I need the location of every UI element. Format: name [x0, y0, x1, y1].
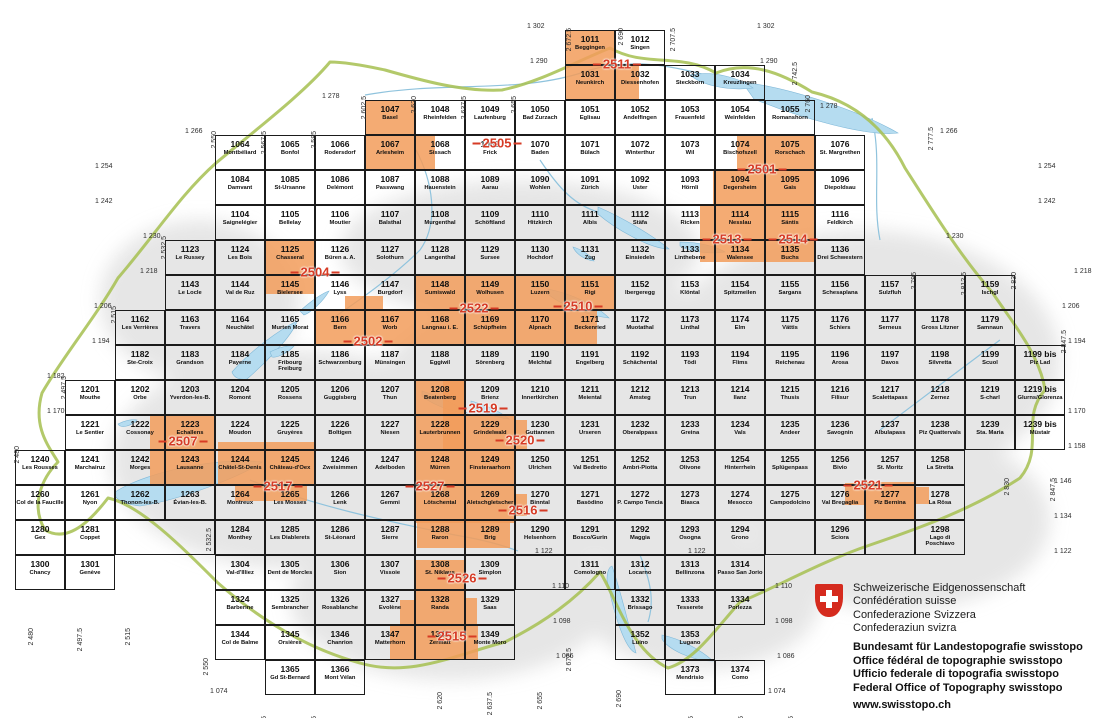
- sheet-name: Wohlen: [516, 185, 564, 191]
- map-sheet-cell: 1199Scuol: [965, 345, 1015, 380]
- grid-coordinate-label: 1 110: [552, 583, 569, 590]
- office-line-it: Ufficio federale di topografia swisstopo: [853, 668, 1083, 682]
- map-sheet-cell: 1076St. Margrethen: [815, 135, 865, 170]
- sheet-number: 1325: [266, 595, 314, 604]
- grid-coordinate-label: 1 206: [94, 303, 112, 310]
- sheet-name: Burgdorf: [366, 290, 414, 296]
- sheet-number: 1215: [766, 385, 814, 394]
- sheet-name: Rheinfelden: [416, 115, 464, 121]
- map-sheet-cell: 1110Hitzkirch: [515, 205, 565, 240]
- sheet-name: Büren a. A.: [316, 255, 364, 261]
- sheet-number: 1245: [266, 455, 314, 464]
- sheet-number: 1174: [716, 315, 764, 324]
- sheet-number: 1131: [566, 245, 614, 254]
- map-sheet-cell: 1050Bad Zurzach: [515, 100, 565, 135]
- sheet-number: 1156: [816, 280, 864, 289]
- map-sheet-cell: 1345Orsières: [265, 625, 315, 660]
- sheet-number: 1154: [716, 280, 764, 289]
- sheet-name: Schächental: [616, 360, 664, 366]
- map-sheet-cell: 1172Muotathal: [615, 310, 665, 345]
- map-sheet-cell: 1243Lausanne: [165, 450, 215, 485]
- grid-coordinate-label: 2 655: [537, 692, 544, 710]
- map-sheet-cell: 1201Mouthe: [65, 380, 115, 415]
- office-names: Bundesamt für Landestopografie swisstopo…: [853, 641, 1083, 695]
- sheet-number: 1182: [116, 350, 164, 359]
- map-sheet-cell: 1165Murten Morat: [265, 310, 315, 345]
- map-sheet-cell: 1241Marchairuz: [65, 450, 115, 485]
- sheet-number: 1086: [316, 175, 364, 184]
- sheet-number: 1240: [16, 455, 64, 464]
- sheet-name: Piz Bernina: [866, 500, 914, 506]
- sheet-number: 1124: [216, 245, 264, 254]
- sheet-number: 1254: [716, 455, 764, 464]
- sheet-number: 1257: [866, 455, 914, 464]
- sheet-number: 1147: [366, 280, 414, 289]
- sheet-name: Chanrion: [316, 640, 364, 646]
- grid-coordinate-label: 2 830: [1011, 272, 1018, 290]
- swisstopo-map-index: Schweizerische Eidgenossenschaft Confédé…: [0, 0, 1100, 718]
- grid-coordinate-label: 1 254: [1038, 163, 1056, 170]
- map-sheet-cell: 1344Col de Balme: [215, 625, 265, 660]
- map-sheet-cell: 1145Bielersee: [265, 275, 315, 310]
- sheet-number: 1179: [966, 315, 1014, 324]
- map-sheet-cell: 1147Burgdorf: [365, 275, 415, 310]
- sheet-name: Col de Balme: [216, 640, 264, 646]
- sheet-name: Elm: [716, 325, 764, 331]
- grid-coordinate-label: 1 122: [1054, 548, 1072, 555]
- sheet-number: 1312: [616, 560, 664, 569]
- sheet-name: Sissach: [416, 150, 464, 156]
- sheet-name: Wolhusen: [466, 290, 514, 296]
- grid-coordinate-label: 2 690: [618, 28, 625, 46]
- sheet-number: 1047: [366, 105, 414, 114]
- map-sheet-cell: 1219 bisGlurns/Glorenza: [1015, 380, 1065, 415]
- sheet-name: Frauenfeld: [666, 115, 714, 121]
- map-sheet-cell: 1107Balsthal: [365, 205, 415, 240]
- sheet-name: Hauenstein: [416, 185, 464, 191]
- sheet-number: 1178: [916, 315, 964, 324]
- sheet-number: 1218: [916, 385, 964, 394]
- sheet-number: 1203: [166, 385, 214, 394]
- map-sheet-cell: 1109Schöftland: [465, 205, 515, 240]
- sheet-name: Barberine: [216, 605, 264, 611]
- map-sheet-cell: 1312Locarno: [615, 555, 665, 590]
- map-sheet-cell: 1196Arosa: [815, 345, 865, 380]
- sheet-number: 1280: [16, 525, 64, 534]
- sheet-number: 1228: [416, 420, 464, 429]
- sheet-name: Monthey: [216, 535, 264, 541]
- sheet-name: Lyss: [316, 290, 364, 296]
- map-sheet-cell: 1298Lago di Poschiavo: [915, 520, 965, 555]
- map-sheet-cell: 1246Zweisimmen: [315, 450, 365, 485]
- sheet-name: Lugano: [666, 640, 714, 646]
- sheet-number: 1053: [666, 105, 714, 114]
- sheet-name: Drei Schwestern: [816, 255, 864, 261]
- sheet-number: 1066: [316, 140, 364, 149]
- sheet-number: 1149: [466, 280, 514, 289]
- map-sheet-cell: 1213Trun: [665, 380, 715, 415]
- grid-coordinate-label: 1 122: [688, 548, 706, 555]
- sheet-name: Grono: [716, 535, 764, 541]
- grid-coordinate-label: 1 098: [775, 618, 793, 625]
- sheet-number: 1162: [116, 315, 164, 324]
- grid-coordinate-label: 1 266: [940, 128, 958, 135]
- grid-coordinate-label: 1 290: [760, 58, 778, 65]
- sheet-name: Ambrì-Piotta: [616, 465, 664, 471]
- sheet-number: 1314: [716, 560, 764, 569]
- sheet-name: Murten Morat: [266, 325, 314, 331]
- map-sheet-cell: 1263Évian-les-B.: [165, 485, 215, 520]
- sheet-name: Schwarzenburg: [316, 360, 364, 366]
- sheet-name: Schiers: [816, 325, 864, 331]
- map-sheet-cell: 1111Albis: [565, 205, 615, 240]
- sheet-number: 1255: [766, 455, 814, 464]
- sheet-number: 1269: [466, 490, 514, 499]
- sheet-number: 1034: [716, 70, 764, 79]
- sheet-name: Nesslau: [716, 220, 764, 226]
- sheet-name: Châtel-St-Denis: [216, 465, 264, 471]
- sheet-name: Moutier: [316, 220, 364, 226]
- map-sheet-cell: 1197Davos: [865, 345, 915, 380]
- map-sheet-cell: 1238Piz Quattervals: [915, 415, 965, 450]
- sheet-number: 1287: [366, 525, 414, 534]
- sheet-name: Serneus: [866, 325, 914, 331]
- sheet-name: Boltigen: [316, 430, 364, 436]
- sheet-number: 1304: [216, 560, 264, 569]
- sheet-name: La Stretta: [916, 465, 964, 471]
- sheet-name: Urseren: [566, 430, 614, 436]
- sheet-number: 1278: [916, 490, 964, 499]
- confed-line-fr: Confédération suisse: [853, 595, 1025, 608]
- map-sheet-cell: 1328Randa: [415, 590, 465, 625]
- sheet-number: 1311: [566, 560, 614, 569]
- sheet-number: 1308: [416, 560, 464, 569]
- sheet-name: Rossens: [266, 395, 314, 401]
- sheet-name: Zernez: [916, 395, 964, 401]
- map-sheet-cell: 1164Neuchâtel: [215, 310, 265, 345]
- sheet-name: Bern: [316, 325, 364, 331]
- sheet-name: Sierre: [366, 535, 414, 541]
- sheet-number: 1309: [466, 560, 514, 569]
- swisstopo-url: www.swisstopo.ch: [853, 699, 951, 711]
- sheet-number: 1227: [366, 420, 414, 429]
- sheet-number: 1093: [666, 175, 714, 184]
- sheet-number: 1290: [516, 525, 564, 534]
- sheet-number: 1243: [166, 455, 214, 464]
- sheet-number: 1244: [216, 455, 264, 464]
- composite-sheet-number: 2510: [552, 299, 605, 314]
- map-sheet-cell: 1232Oberalppass: [615, 415, 665, 450]
- sheet-number: 1067: [366, 140, 414, 149]
- sheet-number: 1085: [266, 175, 314, 184]
- map-sheet-cell: 1132Einsiedeln: [615, 240, 665, 275]
- map-sheet-cell: 1112Stäfa: [615, 205, 665, 240]
- sheet-name: Linthebene: [666, 255, 714, 261]
- map-sheet-cell: 1155Sargans: [765, 275, 815, 310]
- sheet-number: 1105: [266, 210, 314, 219]
- grid-coordinate-label: 1 230: [143, 233, 161, 240]
- sheet-name: Sembrancher: [266, 605, 314, 611]
- map-sheet-cell: 1261Nyon: [65, 485, 115, 520]
- map-sheet-cell: 1190Melchtal: [515, 345, 565, 380]
- sheet-number: 1130: [516, 245, 564, 254]
- sheet-number: 1347: [366, 630, 414, 639]
- map-sheet-cell: 1105Bellelay: [265, 205, 315, 240]
- grid-coordinate-label: 2 760: [805, 95, 812, 113]
- map-sheet-cell: 1171Beckenried: [565, 310, 615, 345]
- map-sheet-cell: 1347Matterhorn: [365, 625, 415, 660]
- map-sheet-cell: 1291Bosco/Gurin: [565, 520, 615, 555]
- sheet-number: 1123: [166, 245, 214, 254]
- empty-sheet-cell: [115, 520, 215, 555]
- sheet-number: 1104: [216, 210, 264, 219]
- sheet-name: Müstair: [1016, 430, 1064, 436]
- map-sheet-cell: 1252Ambrì-Piotta: [615, 450, 665, 485]
- sheet-name: Nyon: [66, 500, 114, 506]
- grid-coordinate-label: 2 602.5: [361, 96, 368, 119]
- sheet-number: 1166: [316, 315, 364, 324]
- sheet-number: 1204: [216, 385, 264, 394]
- map-sheet-cell: 1266Lenk: [315, 485, 365, 520]
- sheet-name: Steckborn: [666, 80, 714, 86]
- sheet-name: Mont Vélan: [316, 675, 364, 681]
- composite-sheet-number: 2519: [457, 401, 510, 416]
- sheet-number: 1113: [666, 210, 714, 219]
- sheet-name: Damvant: [216, 185, 264, 191]
- grid-coordinate-label: 2 497.5: [77, 628, 84, 651]
- sheet-number: 1281: [66, 525, 114, 534]
- sheet-number: 1090: [516, 175, 564, 184]
- sheet-number: 1305: [266, 560, 314, 569]
- map-sheet-cell: 1170Alpnach: [515, 310, 565, 345]
- map-sheet-cell: 1089Aarau: [465, 170, 515, 205]
- map-sheet-cell: 1333Tesserete: [665, 590, 715, 625]
- map-sheet-cell: 1218Zernez: [915, 380, 965, 415]
- grid-coordinate-label: 1 158: [1068, 443, 1086, 450]
- sheet-number: 1272: [616, 490, 664, 499]
- map-sheet-cell: 1255Splügenpass: [765, 450, 815, 485]
- map-sheet-cell: 1093Hörnli: [665, 170, 715, 205]
- map-sheet-cell: 1188Eggiwil: [415, 345, 465, 380]
- sheet-number: 1054: [716, 105, 764, 114]
- grid-coordinate-label: 2 637.5: [461, 96, 468, 119]
- sheet-name: Val Bedretto: [566, 465, 614, 471]
- map-sheet-cell: 1296Sciora: [815, 520, 865, 555]
- map-sheet-cell: 1162Les Verrières: [115, 310, 165, 345]
- map-sheet-cell: 1193Tödi: [665, 345, 715, 380]
- sheet-name: Melchtal: [516, 360, 564, 366]
- sheet-number: 1068: [416, 140, 464, 149]
- sheet-name: Albis: [566, 220, 614, 226]
- sheet-name: Neunkirch: [566, 80, 614, 86]
- map-sheet-cell: 1096Diepoldsau: [815, 170, 865, 205]
- sheet-number: 1125: [266, 245, 314, 254]
- sheet-number: 1236: [816, 420, 864, 429]
- sheet-name: Luino: [616, 640, 664, 646]
- sheet-number: 1266: [316, 490, 364, 499]
- map-sheet-cell: 1280Gex: [15, 520, 65, 555]
- sheet-number: 1208: [416, 385, 464, 394]
- sheet-number: 1183: [166, 350, 214, 359]
- sheet-number: 1096: [816, 175, 864, 184]
- confed-line-it: Confederazione Svizzera: [853, 609, 1025, 622]
- sheet-number: 1301: [66, 560, 114, 569]
- grid-coordinate-label: 1 086: [777, 653, 795, 660]
- sheet-number: 1089: [466, 175, 514, 184]
- sheet-number: 1206: [316, 385, 364, 394]
- sheet-name: Walensee: [716, 255, 764, 261]
- map-sheet-cell: 1053Frauenfeld: [665, 100, 715, 135]
- grid-coordinate-label: 2 812.5: [961, 272, 968, 295]
- sheet-number: 1196: [816, 350, 864, 359]
- map-sheet-cell: 1304Val-d'Illiez: [215, 555, 265, 590]
- sheet-number: 1234: [716, 420, 764, 429]
- map-sheet-cell: 1153Klöntal: [665, 275, 715, 310]
- sheet-name: P. Campo Tencia: [616, 500, 664, 506]
- map-sheet-cell: 1185Fribourg Freiburg: [265, 345, 315, 380]
- sheet-name: Buchs: [766, 255, 814, 261]
- sheet-name: Brig: [466, 535, 514, 541]
- sheet-number: 1214: [716, 385, 764, 394]
- sheet-number: 1033: [666, 70, 714, 79]
- sheet-number: 1168: [416, 315, 464, 324]
- sheet-name: Hinterrhein: [716, 465, 764, 471]
- map-sheet-cell: 1123Le Russey: [165, 240, 215, 275]
- map-sheet-cell: 1065Bonfol: [265, 135, 315, 170]
- sheet-number: 1270: [516, 490, 564, 499]
- map-sheet-cell: 1275Campodolcino: [765, 485, 815, 520]
- sheet-number: 1201: [66, 385, 114, 394]
- sheet-name: Schesaplana: [816, 290, 864, 296]
- sheet-number: 1184: [216, 350, 264, 359]
- sheet-name: Orsières: [266, 640, 314, 646]
- sheet-number: 1242: [116, 455, 164, 464]
- map-sheet-cell: 1289Brig: [465, 520, 515, 555]
- sheet-number: 1198: [916, 350, 964, 359]
- sheet-number: 1291: [566, 525, 614, 534]
- sheet-name: Hörnli: [666, 185, 714, 191]
- sheet-number: 1109: [466, 210, 514, 219]
- map-sheet-cell: 1179Samnaun: [965, 310, 1015, 345]
- map-sheet-cell: 1084Damvant: [215, 170, 265, 205]
- map-sheet-cell: 1274Mesocco: [715, 485, 765, 520]
- grid-coordinate-label: 1 302: [527, 23, 545, 30]
- map-sheet-cell: 1106Moutier: [315, 205, 365, 240]
- map-sheet-cell: 1228Lauterbrunnen: [415, 415, 465, 450]
- map-sheet-cell: 1130Hochdorf: [515, 240, 565, 275]
- sheet-name: Trun: [666, 395, 714, 401]
- sheet-name: Alpnach: [516, 325, 564, 331]
- sheet-number: 1065: [266, 140, 314, 149]
- grid-coordinate-label: 1 122: [535, 548, 553, 555]
- sheet-name: Filisur: [816, 395, 864, 401]
- sheet-number: 1224: [216, 420, 264, 429]
- sheet-name: Val Bregaglia: [816, 500, 864, 506]
- sheet-name: Morges: [116, 465, 164, 471]
- map-sheet-cell: 1146Lyss: [315, 275, 365, 310]
- sheet-name: Basel: [366, 115, 414, 121]
- map-sheet-cell: 1327Evolène: [365, 590, 415, 625]
- sheet-number: 1152: [616, 280, 664, 289]
- sheet-name: Dent de Morcles: [266, 570, 314, 576]
- sheet-name: Ibergeregg: [616, 290, 664, 296]
- grid-coordinate-label: 2 585: [311, 131, 318, 149]
- sheet-number: 1075: [766, 140, 814, 149]
- sheet-name: Lago di Poschiavo: [916, 535, 964, 548]
- map-sheet-cell: 1033Steckborn: [665, 65, 715, 100]
- map-sheet-cell: 1092Uster: [615, 170, 665, 205]
- sheet-name: Schüpfheim: [466, 325, 514, 331]
- map-sheet-cell: 1064Montbéliard: [215, 135, 265, 170]
- map-sheet-cell: 1253Olivone: [665, 450, 715, 485]
- sheet-name: Sciora: [816, 535, 864, 541]
- sheet-name: Reichenau: [766, 360, 814, 366]
- map-sheet-cell: 1048Rheinfelden: [415, 100, 465, 135]
- sheet-number: 1253: [666, 455, 714, 464]
- sheet-number: 1144: [216, 280, 264, 289]
- map-sheet-cell: 1346Chanrion: [315, 625, 365, 660]
- sheet-name: Chasseral: [266, 255, 314, 261]
- sheet-name: Vissoie: [366, 570, 414, 576]
- grid-coordinate-label: 1 194: [92, 338, 110, 345]
- map-sheet-cell: 1301Genève: [65, 555, 115, 590]
- sheet-number: 1211: [566, 385, 614, 394]
- sheet-number: 1205: [266, 385, 314, 394]
- sheet-number: 1313: [666, 560, 714, 569]
- map-sheet-cell: 1157Sulzfluh: [865, 275, 915, 310]
- map-sheet-cell: 1127Solothurn: [365, 240, 415, 275]
- grid-coordinate-label: 2 637.5: [487, 692, 494, 715]
- composite-sheet-number: 2513: [701, 232, 754, 247]
- map-sheet-cell: 1068Sissach: [415, 135, 465, 170]
- sheet-number: 1238: [916, 420, 964, 429]
- sheet-number: 1207: [366, 385, 414, 394]
- map-sheet-cell: 1240Les Rousses: [15, 450, 65, 485]
- sheet-name: Locarno: [616, 570, 664, 576]
- sheet-number: 1298: [916, 525, 964, 534]
- map-sheet-cell: 1278La Rösa: [915, 485, 965, 520]
- sheet-number: 1251: [566, 455, 614, 464]
- sheet-name: Flims: [716, 360, 764, 366]
- sheet-name: Biasca: [666, 500, 714, 506]
- sheet-number: 1165: [266, 315, 314, 324]
- map-sheet-cell: 1051Eglisau: [565, 100, 615, 135]
- grid-coordinate-label: 2 550: [203, 658, 210, 676]
- sheet-number: 1329: [466, 595, 514, 604]
- map-sheet-cell: 1365Gd St-Bernard: [265, 660, 315, 695]
- sheet-number: 1326: [316, 595, 364, 604]
- sheet-number: 1346: [316, 630, 364, 639]
- map-sheet-cell: 1088Hauenstein: [415, 170, 465, 205]
- sheet-name: Niesen: [366, 430, 414, 436]
- sheet-number: 1145: [266, 280, 314, 289]
- sheet-number: 1191: [566, 350, 614, 359]
- sheet-number: 1324: [216, 595, 264, 604]
- grid-coordinate-label: 1 218: [1074, 268, 1092, 275]
- grid-coordinate-label: 1 170: [1068, 408, 1086, 415]
- sheet-name: Les Bois: [216, 255, 264, 261]
- sheet-number: 1150: [516, 280, 564, 289]
- sheet-name: Neuchâtel: [216, 325, 264, 331]
- sheet-number: 1143: [166, 280, 214, 289]
- sheet-name: Les Diablerets: [266, 535, 314, 541]
- grid-coordinate-label: 2 777.5: [928, 127, 935, 150]
- sheet-name: Adelboden: [366, 465, 414, 471]
- sheet-name: Ischgl: [966, 290, 1014, 296]
- map-sheet-cell: 1159Ischgl: [965, 275, 1015, 310]
- sheet-name: Bellelay: [266, 220, 314, 226]
- map-sheet-cell: 1251Val Bedretto: [565, 450, 615, 485]
